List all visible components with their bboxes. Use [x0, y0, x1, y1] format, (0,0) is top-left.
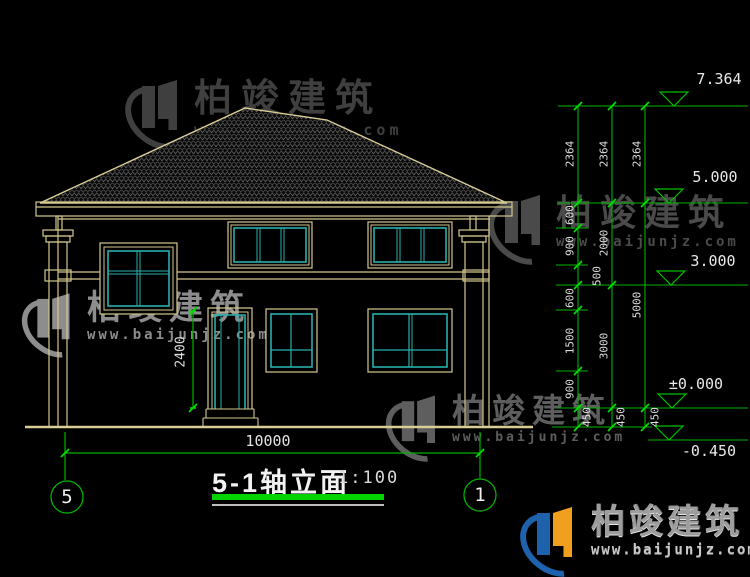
dim-chain1-900a: 900	[564, 236, 577, 256]
right-pilaster	[459, 216, 489, 427]
dim-chain1-600a: 600	[564, 205, 577, 225]
first-floor-window-center	[266, 309, 317, 372]
eave-fascia	[36, 202, 512, 219]
elevation-zero: ±0.000	[669, 375, 723, 393]
dim-chain1-600b: 600	[564, 288, 577, 308]
dim-chain2-450: 450	[615, 407, 628, 427]
dim-chain3-450: 450	[649, 407, 662, 427]
drawing-scale: 1:100	[338, 468, 399, 488]
axis-bubble-5: 5	[61, 486, 72, 508]
elevation-floor2: 3.000	[690, 252, 735, 270]
dim-chain2-2000: 2000	[598, 230, 611, 257]
second-floor-window-right	[368, 222, 452, 268]
dim-chain1-900b: 900	[564, 379, 577, 399]
title-underline-thin	[212, 504, 384, 506]
entry-steps	[203, 409, 258, 427]
dim-chain1-2364: 2364	[564, 141, 577, 168]
first-floor-window-right	[368, 309, 452, 372]
dim-chain1-450: 450	[581, 407, 594, 427]
entrance-door	[208, 308, 252, 409]
hip-roof	[40, 108, 507, 203]
elevation-drawing	[0, 0, 750, 577]
dim-chain3-5000: 5000	[631, 292, 644, 319]
brand-logo-icon	[527, 507, 581, 567]
stair-window	[100, 243, 177, 314]
cad-canvas: 柏竣建筑 www.baijunjz.com 柏竣建筑 www.baijunjz.…	[0, 0, 750, 577]
dim-chain1-500: 500	[591, 266, 604, 286]
elevation-grade: -0.450	[682, 442, 736, 460]
dim-chain2-2364: 2364	[598, 141, 611, 168]
brand-name: 柏竣建筑	[591, 505, 750, 539]
title-underline-green	[212, 494, 384, 500]
brand-url: www.baijunjz.com	[591, 542, 750, 558]
dim-chain2-3000: 3000	[598, 333, 611, 360]
elevation-ridge: 7.364	[696, 70, 741, 88]
dim-chain1-1500: 1500	[564, 328, 577, 355]
elevation-eave: 5.000	[692, 168, 737, 186]
dim-overall-width: 10000	[245, 432, 290, 450]
brand-logo: 柏竣建筑 www.baijunjz.com	[527, 505, 750, 567]
dim-chain3-2364: 2364	[631, 141, 644, 168]
axis-bubble-1: 1	[474, 484, 485, 506]
door-height-dimension	[189, 307, 197, 412]
second-floor-window-left	[228, 222, 312, 268]
dim-door-height: 2400	[174, 336, 189, 367]
